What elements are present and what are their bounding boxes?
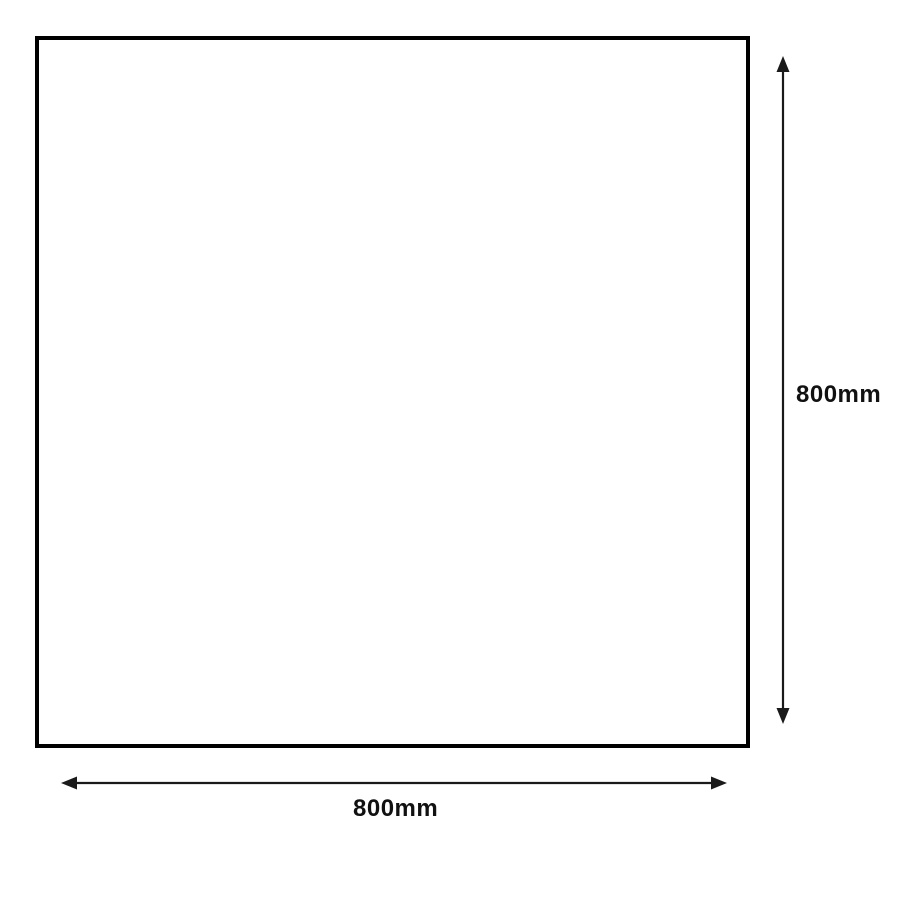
arrow-down-icon [777, 708, 790, 724]
vertical-dimension-arrow [771, 55, 795, 725]
width-dimension-label: 800mm [353, 797, 438, 821]
horizontal-dimension-arrow [60, 771, 728, 795]
dimension-square [35, 36, 750, 748]
height-dimension-label: 800mm [796, 383, 881, 407]
diagram-canvas: 800mm 800mm [0, 0, 900, 900]
arrow-right-icon [711, 777, 727, 790]
